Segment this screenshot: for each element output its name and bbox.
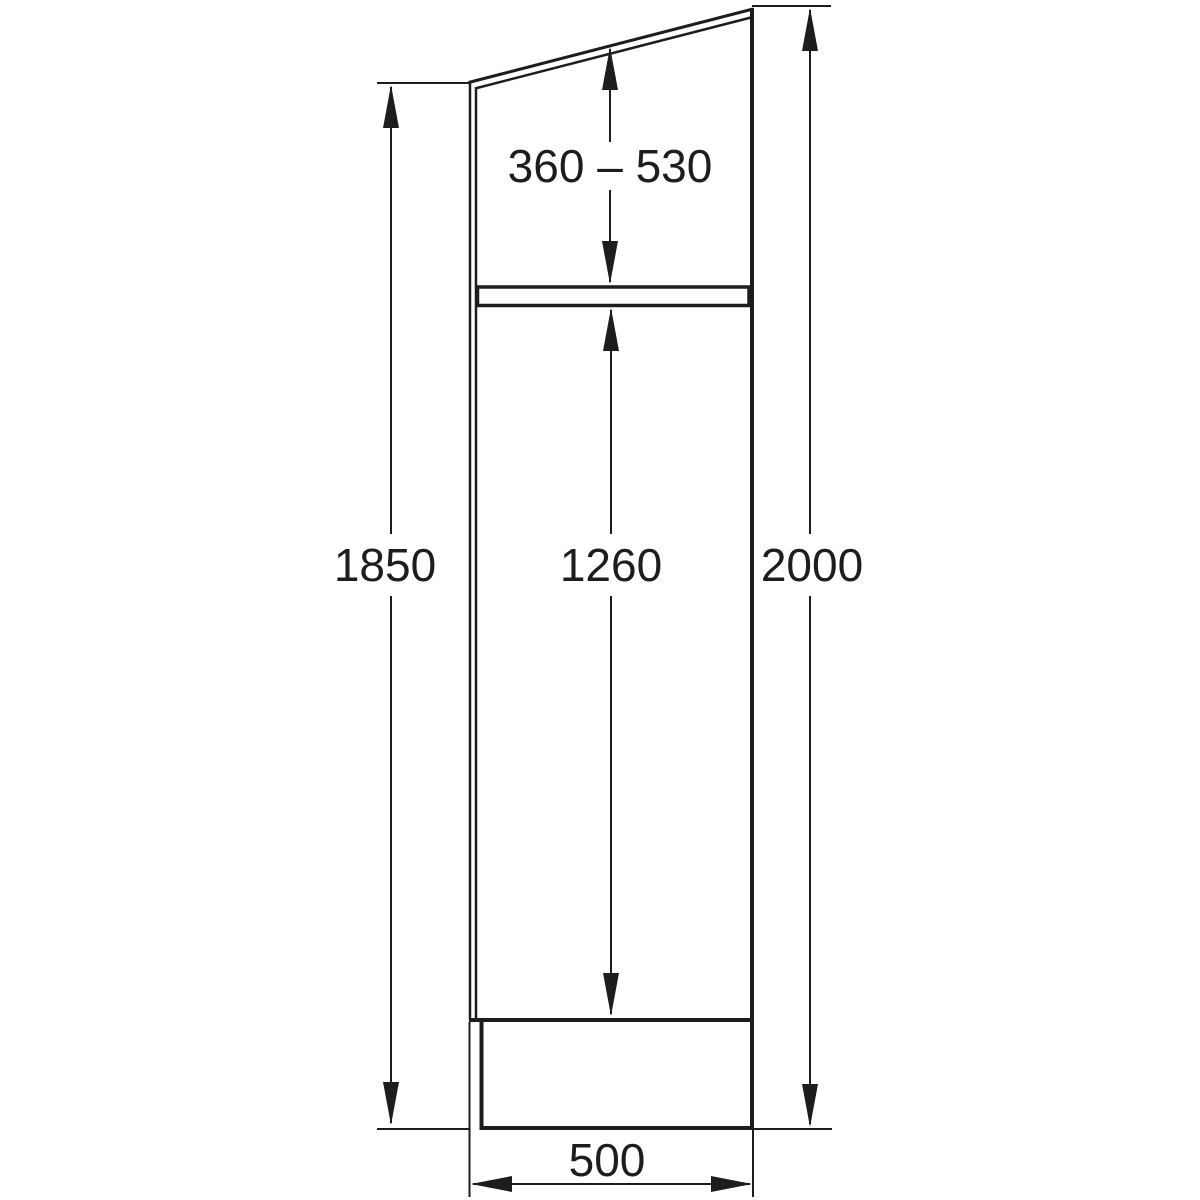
cabinet-dimension-drawing: 360 – 530 1850 1260 2000 500 bbox=[0, 0, 1200, 1200]
dimension-label-top: 360 – 530 bbox=[508, 140, 713, 192]
dimension-label-bottom: 500 bbox=[569, 1134, 646, 1186]
dimension-label-middle: 1260 bbox=[560, 539, 662, 591]
dimension-label-right: 2000 bbox=[761, 539, 863, 591]
drawing-canvas: 360 – 530 1850 1260 2000 500 bbox=[0, 0, 1200, 1200]
dimension-label-left: 1850 bbox=[334, 539, 436, 591]
plinth bbox=[482, 1020, 753, 1128]
shelf-band bbox=[478, 287, 750, 306]
